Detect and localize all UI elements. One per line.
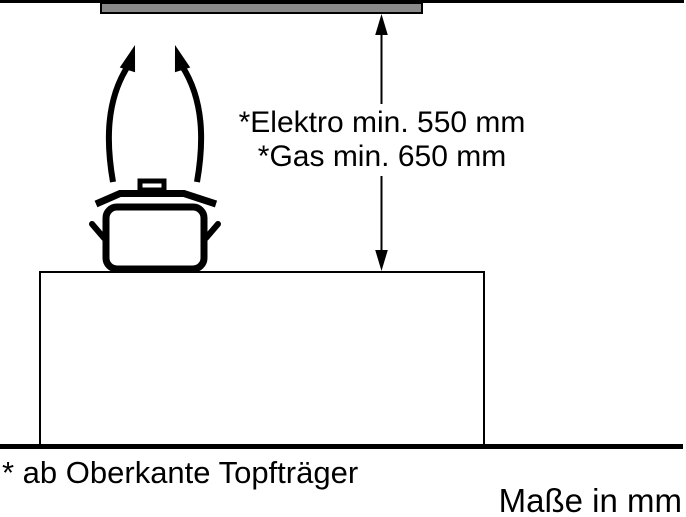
units-note-text: Maße in mm [499, 482, 682, 517]
floor-line [0, 444, 683, 449]
counter-outline [40, 272, 484, 446]
diagram-canvas [0, 0, 686, 517]
steam-arrow-right-icon [167, 43, 201, 182]
pot-icon [92, 181, 218, 269]
installation-diagram: *Elektro min. 550 mm *Gas min. 650 mm * … [0, 0, 686, 517]
gas-clearance-text: *Gas min. 650 mm [239, 140, 526, 174]
steam-arrow-left-icon [109, 43, 143, 182]
cooker-hood [101, 3, 422, 13]
arrowhead-down-icon [375, 250, 388, 271]
footnote-text: * ab Oberkante Topfträger [2, 455, 358, 491]
electric-clearance-text: *Elektro min. 550 mm [239, 106, 526, 140]
clearance-annotation: *Elektro min. 550 mm *Gas min. 650 mm [231, 104, 534, 176]
arrowhead-up-icon [375, 14, 388, 35]
